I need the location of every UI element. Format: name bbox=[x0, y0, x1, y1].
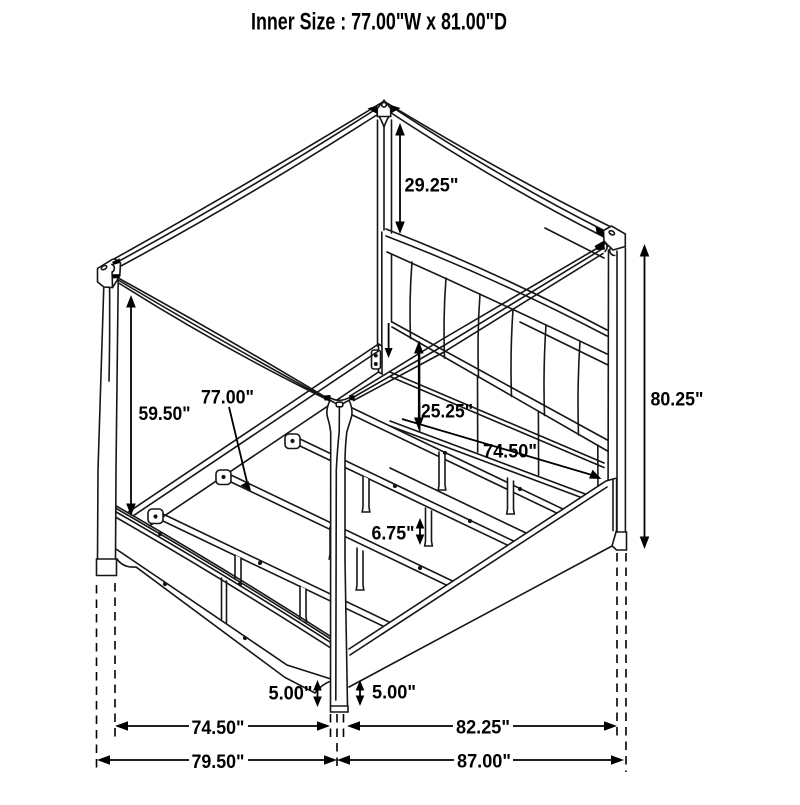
svg-text:5.00": 5.00" bbox=[372, 683, 416, 704]
svg-text:80.25": 80.25" bbox=[651, 390, 704, 411]
svg-text:74.50": 74.50" bbox=[483, 442, 537, 463]
svg-text:59.50": 59.50" bbox=[139, 404, 191, 425]
svg-text:5.00": 5.00" bbox=[269, 684, 313, 705]
svg-text:77.00": 77.00" bbox=[201, 388, 254, 409]
svg-text:Inner Size : 77.00"W x 81.00"D: Inner Size : 77.00"W x 81.00"D bbox=[251, 9, 507, 36]
svg-text:87.00": 87.00" bbox=[457, 752, 511, 773]
svg-text:29.25": 29.25" bbox=[405, 176, 459, 197]
svg-text:74.50": 74.50" bbox=[192, 718, 245, 739]
svg-text:79.50": 79.50" bbox=[192, 752, 245, 773]
svg-text:25.25": 25.25" bbox=[421, 402, 473, 423]
svg-text:82.25": 82.25" bbox=[456, 718, 510, 739]
svg-text:6.75": 6.75" bbox=[372, 524, 415, 545]
